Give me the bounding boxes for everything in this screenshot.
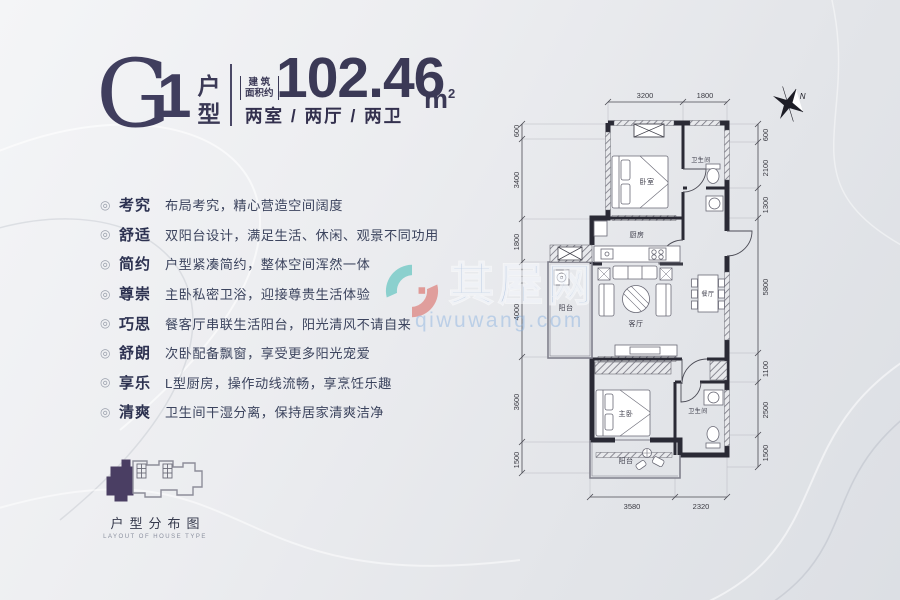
unit-type-number: 1 [157, 66, 191, 128]
bullet-icon: ◎ [100, 287, 119, 301]
feature-item: ◎舒适双阳台设计，满足生活、休闲、观景不同功用 [100, 220, 439, 250]
feature-item: ◎考究布局考究，精心营造空间阔度 [100, 190, 439, 220]
bullet-icon: ◎ [100, 257, 119, 271]
feature-item: ◎尊崇主卧私密卫浴，迎接尊贵生活体验 [100, 279, 439, 309]
bullet-icon: ◎ [100, 346, 119, 360]
dim-right-6: 2500 [761, 402, 770, 419]
feature-label: 享乐 [119, 372, 165, 393]
dim-right-7: 1500 [761, 445, 770, 462]
dim-right-2: 2100 [761, 160, 770, 177]
highlighted-unit [107, 460, 133, 501]
feature-item: ◎享乐L型厨房，操作动线流畅，享烹饪乐趣 [100, 368, 439, 398]
distribution-subtitle: LAYOUT OF HOUSE TYPE [80, 534, 230, 540]
dim-right-5: 1100 [761, 361, 770, 377]
feature-item: ◎简约户型紧凑简约，整体空间浑然一体 [100, 249, 439, 279]
bay-window-icon [634, 124, 664, 137]
feature-desc: 主卧私密卫浴，迎接尊贵生活体验 [165, 284, 370, 303]
elevator-icon [550, 245, 592, 262]
feature-item: ◎清爽卫生间干湿分离，保持居家清爽洁净 [100, 397, 439, 427]
room-label-kitchen: 厨房 [630, 230, 645, 239]
feature-label: 考究 [119, 194, 165, 215]
dim-left-3: 1800 [512, 234, 521, 251]
building-footprint-icon [103, 455, 207, 507]
header-divider [230, 64, 232, 126]
dim-right-1: 600 [761, 129, 770, 142]
bullet-icon: ◎ [100, 375, 119, 389]
bullet-icon: ◎ [100, 227, 119, 241]
dim-left-1: 600 [512, 125, 521, 138]
feature-desc: 户型紧凑简约，整体空间浑然一体 [165, 254, 370, 273]
dim-bottom-1: 3580 [624, 502, 641, 511]
dim-right-4: 5800 [761, 279, 770, 296]
dim-left-5: 3600 [512, 394, 521, 411]
unit-type-word-top: 户 [196, 72, 222, 100]
dim-bottom-2: 2320 [693, 502, 710, 511]
room-label-master: 主卧 [619, 409, 634, 418]
room-label-bedroom: 卧室 [640, 177, 655, 186]
room-label-balcony-bottom: 阳台 [619, 456, 634, 465]
feature-label: 简约 [119, 253, 165, 274]
unit-type-word-bottom: 型 [196, 100, 222, 128]
compass-north-label: N [800, 92, 806, 101]
dim-top-2: 1800 [697, 91, 714, 100]
feature-desc: 卫生间干湿分离，保持居家清爽洁净 [165, 402, 384, 421]
feature-label: 清爽 [119, 401, 165, 422]
feature-list: ◎考究布局考究，精心营造空间阔度 ◎舒适双阳台设计，满足生活、休闲、观景不同功用… [100, 190, 439, 427]
dim-left-2: 3400 [512, 172, 521, 189]
area-label-line1: 建 筑 [245, 77, 274, 88]
dim-right-3: 1300 [761, 197, 770, 214]
area-value: 102.46 [276, 50, 444, 107]
feature-desc: 次卧配备飘窗，享受更多阳光宠爱 [165, 343, 370, 362]
area-unit-m: m [424, 84, 448, 114]
bullet-icon: ◎ [100, 316, 119, 330]
unit-type-word: 户 型 [196, 72, 222, 128]
layout-summary: 两室 / 两厅 / 两卫 [245, 103, 403, 128]
feature-label: 巧思 [119, 313, 165, 334]
compass-icon: N [765, 79, 812, 127]
furniture [554, 156, 725, 470]
room-label-living: 客厅 [629, 319, 644, 328]
room-label-bath-top: 卫生间 [691, 156, 711, 164]
bullet-icon: ◎ [100, 198, 119, 212]
room-label-balcony-left: 阳台 [559, 303, 574, 312]
dim-left-4: 4000 [512, 304, 521, 321]
feature-label: 舒朗 [119, 342, 165, 363]
room-label-bath-bottom: 卫生间 [688, 407, 708, 415]
feature-desc: 布局考究，精心营造空间阔度 [165, 195, 343, 214]
feature-desc: 双阳台设计，满足生活、休闲、观景不同功用 [165, 225, 439, 244]
feature-item: ◎巧思餐客厅串联生活阳台，阳光清风不请自来 [100, 308, 439, 338]
feature-label: 舒适 [119, 224, 165, 245]
feature-desc: 餐客厅串联生活阳台，阳光清风不请自来 [165, 314, 411, 333]
area-label: 建 筑 面积约 [240, 76, 279, 100]
dim-left-6: 1500 [512, 452, 521, 469]
flyer-canvas: G 1 户 型 建 筑 面积约 102.46 m2 两室 / 两厅 / 两卫 ◎… [0, 0, 900, 600]
bullet-icon: ◎ [100, 405, 119, 419]
area-unit-exp: 2 [448, 86, 455, 101]
stair-core-icon [137, 464, 172, 478]
area-unit: m2 [424, 84, 455, 115]
room-label-dining: 餐厅 [701, 290, 714, 298]
floorplan: 3200 1800 3580 2320 600 3400 1800 4000 3… [500, 72, 845, 522]
feature-desc: L型厨房，操作动线流畅，享烹饪乐趣 [165, 373, 392, 392]
distribution-title: 户型分布图 [80, 513, 230, 532]
feature-item: ◎舒朗次卧配备飘窗，享受更多阳光宠爱 [100, 338, 439, 368]
dim-top-1: 3200 [637, 91, 654, 100]
area-label-line2: 面积约 [245, 88, 274, 99]
distribution-block: 户型分布图 LAYOUT OF HOUSE TYPE [80, 455, 230, 540]
feature-label: 尊崇 [119, 283, 165, 304]
